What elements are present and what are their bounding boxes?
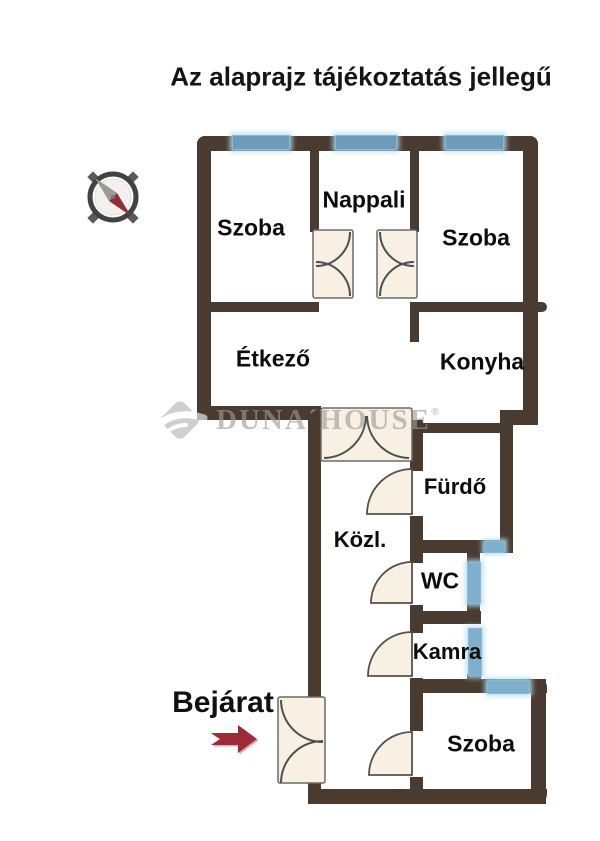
room-label-konyha: Konyha <box>440 349 524 376</box>
door-furdo <box>367 469 412 514</box>
wall-outer-bottom <box>308 789 547 804</box>
wall-outer-right <box>523 136 538 425</box>
door-entrance <box>278 697 325 783</box>
entrance-arrow-icon <box>209 724 259 754</box>
door-kamra <box>368 632 412 676</box>
room-label-kamra: Kamra <box>413 639 481 665</box>
window-nappali <box>335 135 397 150</box>
wall-corridor-left <box>308 406 321 698</box>
door-wc <box>371 562 412 603</box>
door-etkezo-kozlekedo <box>321 408 412 461</box>
room-label-szoba-top-left: Szoba <box>217 215 285 242</box>
wall-wc-right-upper <box>467 540 480 562</box>
window-wc <box>467 562 481 604</box>
room-label-wc: WC <box>421 568 459 595</box>
wall-etkezo-konyha-stub <box>410 302 419 342</box>
wall-wc-kamra-divider <box>410 611 481 624</box>
floorplan-canvas: Az alaprajz tájékoztatás jellegű <box>0 0 600 841</box>
room-label-szoba-bottom: Szoba <box>447 731 515 758</box>
wall-furdo-top <box>415 423 510 433</box>
door-nappali-right <box>377 230 417 298</box>
window-furdo <box>484 541 505 553</box>
window-szoba-right <box>445 135 504 150</box>
room-label-furdo: Fürdő <box>424 474 486 500</box>
wall-corridor-right-e <box>410 777 423 804</box>
wall-szoba-bottom-right <box>531 679 546 804</box>
door-nappali-left <box>313 230 353 298</box>
room-label-szoba-top-right: Szoba <box>442 225 510 252</box>
wall-konyha-step-vertical <box>500 423 513 553</box>
wall-outer-left <box>197 136 211 420</box>
wall-etkezo-bottom <box>197 406 321 420</box>
wall-szoba-right-bottom <box>410 302 547 312</box>
compass-icon <box>83 165 145 229</box>
window-szoba-left <box>232 135 290 150</box>
watermark: DUNA´HOUSE® <box>152 392 439 448</box>
wall-szoba-left-nappali <box>310 151 319 232</box>
room-label-kozlekedo: Közl. <box>334 527 387 553</box>
door-szoba-bottom <box>369 732 412 775</box>
wall-nappali-szoba-right <box>410 151 419 232</box>
entrance-label: Bejárat <box>172 686 274 720</box>
wall-szoba-left-bottom <box>197 302 319 312</box>
page-title: Az alaprajz tájékoztatás jellegű <box>170 62 551 93</box>
room-label-etkezo: Étkező <box>236 346 310 373</box>
room-label-nappali: Nappali <box>322 187 405 214</box>
window-szoba-bottom <box>487 680 530 694</box>
